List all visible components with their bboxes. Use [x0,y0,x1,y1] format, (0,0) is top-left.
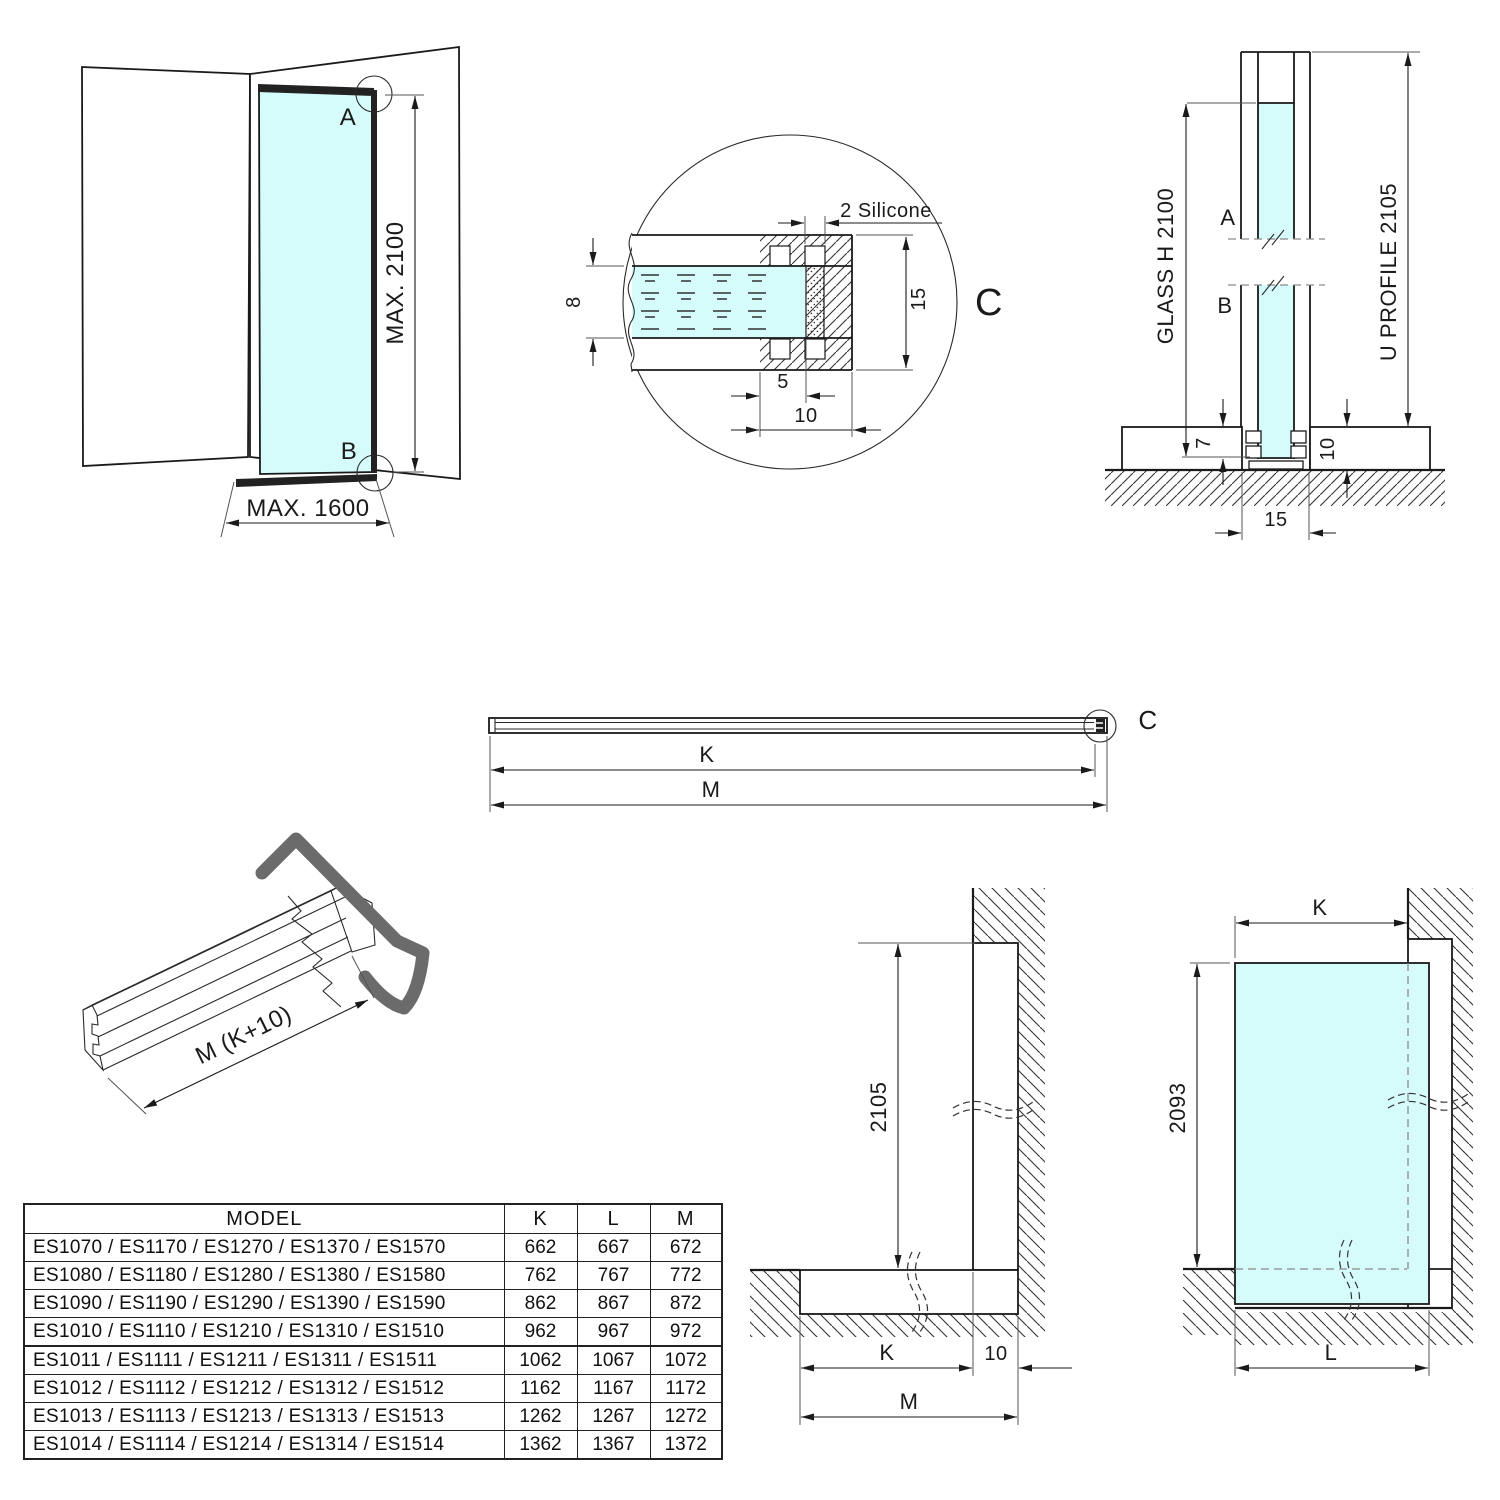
dim-15: 15 [1264,509,1287,531]
header-k: K [504,1204,577,1234]
value-cell: 867 [577,1290,650,1318]
value-cell: 972 [650,1318,722,1347]
dim-7: 7 [1193,437,1215,449]
glass-panel [1235,963,1429,1304]
table-row: ES1070 / ES1170 / ES1270 / ES1370 / ES15… [24,1234,722,1262]
view-detail-c: 8 15 5 10 2 Silicone C [563,135,1003,469]
model-cell: ES1090 / ES1190 / ES1290 / ES1390 / ES15… [24,1290,504,1318]
dim-k: K [879,1340,894,1365]
value-cell: 772 [650,1262,722,1290]
glass-lower [1258,285,1294,458]
view-side-elevation: A B GLASS H 2100 U PROFILE 2105 7 10 [1105,52,1445,540]
value-cell: 1272 [650,1403,722,1431]
value-cell: 967 [577,1318,650,1347]
end-cap [1096,719,1105,732]
plinth-left [1122,427,1242,470]
view-profile-length: K M C [489,705,1158,812]
value-cell: 962 [504,1318,577,1347]
value-cell: 1267 [577,1403,650,1431]
left-wall [82,67,250,466]
floor-profile [800,1270,1018,1314]
value-cell: 1162 [504,1375,577,1403]
floor-profile [236,474,377,487]
glass-panel [259,88,374,474]
table-row: ES1080 / ES1180 / ES1280 / ES1380 / ES15… [24,1262,722,1290]
header-m: M [650,1204,722,1234]
table-body: ES1070 / ES1170 / ES1270 / ES1370 / ES15… [24,1234,722,1460]
profile-leg-top [632,235,760,266]
view-corner-perspective: A B MAX. 2100 MAX. 1600 [82,47,460,537]
wall-profile [371,90,377,473]
header-l: L [577,1204,650,1234]
wall-profile [973,943,1018,1270]
model-cell: ES1010 / ES1110 / ES1210 / ES1310 / ES15… [24,1318,504,1347]
dim-15: 15 [908,287,930,310]
dim-glass-height: GLASS H 2100 [1153,188,1178,344]
model-cell: ES1014 / ES1114 / ES1214 / ES1314 / ES15… [24,1431,504,1460]
value-cell: 1372 [650,1431,722,1460]
dim-max-width: MAX. 1600 [246,495,369,522]
dim-m: M [702,777,721,802]
value-cell: 1067 [577,1346,650,1375]
table-row: ES1090 / ES1190 / ES1290 / ES1390 / ES15… [24,1290,722,1318]
dim-l: L [1325,1340,1338,1365]
value-cell: 872 [650,1290,722,1318]
model-cell: ES1012 / ES1112 / ES1212 / ES1312 / ES15… [24,1375,504,1403]
detail-letter-c: C [975,282,1003,324]
table-header-row: MODEL K L M [24,1204,722,1234]
value-cell: 1362 [504,1431,577,1460]
table-row: ES1013 / ES1113 / ES1213 / ES1313 / ES15… [24,1403,722,1431]
table-row: ES1012 / ES1112 / ES1212 / ES1312 / ES15… [24,1375,722,1403]
label-b: B [341,438,358,465]
value-cell: 662 [504,1234,577,1262]
value-cell: 1062 [504,1346,577,1375]
dim-m: M [900,1389,919,1414]
table-row: ES1014 / ES1114 / ES1214 / ES1314 / ES15… [24,1431,722,1460]
value-cell: 762 [504,1262,577,1290]
value-cell: 767 [577,1262,650,1290]
dim-k: K [699,742,714,767]
floor-hatch [1105,471,1445,506]
dim-2105: 2105 [866,1082,891,1133]
label-a: A [1220,205,1235,230]
profile-leg-bottom [632,338,760,370]
table-row: ES1010 / ES1110 / ES1210 / ES1310 / ES15… [24,1318,722,1347]
view-profile-isometric: M (K+10) [83,839,423,1114]
table-row: ES1011 / ES1111 / ES1211 / ES1311 / ES15… [24,1346,722,1375]
view-glass-wall-elevation: K 2093 L [1165,888,1473,1376]
break-zigzag [288,896,341,1007]
dim-10: 10 [794,405,817,427]
dim-8: 8 [563,296,585,308]
value-cell: 862 [504,1290,577,1318]
technical-drawing-sheet: A B MAX. 2100 MAX. 1600 [0,0,1500,1500]
detail-letter-c: C [1138,705,1157,735]
dim-profile-height: U PROFILE 2105 [1376,183,1401,361]
model-cell: ES1013 / ES1113 / ES1213 / ES1313 / ES15… [24,1403,504,1431]
value-cell: 1367 [577,1431,650,1460]
value-cell: 1072 [650,1346,722,1375]
model-spec-table: MODEL K L M ES1070 / ES1170 / ES1270 / E… [23,1203,723,1460]
label-a: A [340,104,357,131]
value-cell: 1262 [504,1403,577,1431]
silicone-strip [806,266,824,338]
label-b: B [1217,293,1232,318]
glass-section [632,266,806,338]
dim-k: K [1312,895,1327,920]
model-cell: ES1011 / ES1111 / ES1211 / ES1311 / ES15… [24,1346,504,1375]
value-cell: 1167 [577,1375,650,1403]
value-cell: 667 [577,1234,650,1262]
value-cell: 672 [650,1234,722,1262]
dim-5: 5 [777,371,789,393]
header-model: MODEL [24,1204,504,1234]
profile-bar [489,718,1107,733]
dim-max-height: MAX. 2100 [382,221,409,344]
dim-10: 10 [984,1343,1007,1365]
dim-10: 10 [1317,437,1339,460]
view-wall-floor-section: 2105 K 10 M [750,888,1072,1425]
silicone-label: 2 Silicone [840,200,932,222]
model-cell: ES1070 / ES1170 / ES1270 / ES1370 / ES15… [24,1234,504,1262]
value-cell: 1172 [650,1375,722,1403]
model-cell: ES1080 / ES1180 / ES1280 / ES1380 / ES15… [24,1262,504,1290]
dim-2093: 2093 [1165,1083,1190,1134]
glass-upper [1258,103,1294,239]
